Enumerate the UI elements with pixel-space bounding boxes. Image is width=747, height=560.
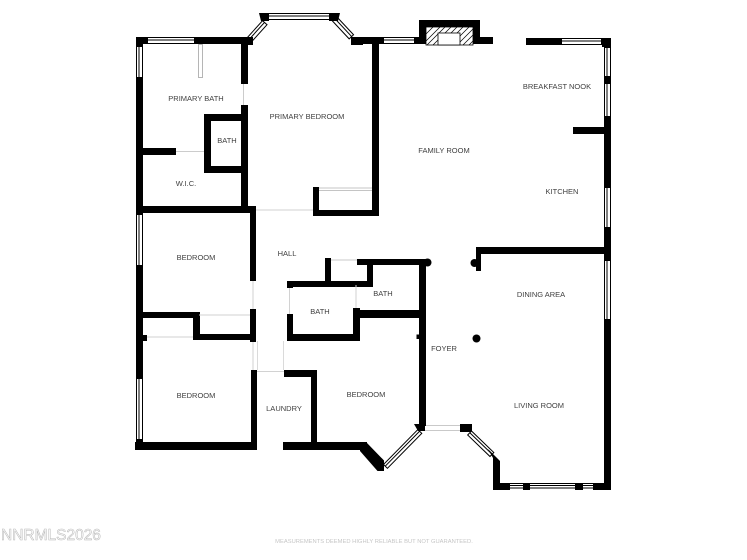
svg-text:HALL: HALL <box>278 249 297 258</box>
svg-text:BATH: BATH <box>310 307 329 316</box>
svg-text:FAMILY ROOM: FAMILY ROOM <box>418 146 469 155</box>
svg-text:BEDROOM: BEDROOM <box>177 391 216 400</box>
svg-text:BATH: BATH <box>217 136 236 145</box>
svg-text:FOYER: FOYER <box>431 344 457 353</box>
svg-text:PRIMARY BEDROOM: PRIMARY BEDROOM <box>270 112 345 121</box>
svg-text:BEDROOM: BEDROOM <box>177 253 216 262</box>
svg-text:KITCHEN: KITCHEN <box>546 187 579 196</box>
svg-text:MEASUREMENTS DEEMED HIGHLY REL: MEASUREMENTS DEEMED HIGHLY RELIABLE BUT … <box>275 539 473 545</box>
svg-text:W.I.C.: W.I.C. <box>176 179 196 188</box>
svg-text:BEDROOM: BEDROOM <box>347 390 386 399</box>
svg-text:BATH: BATH <box>373 289 392 298</box>
svg-text:LIVING ROOM: LIVING ROOM <box>514 401 564 410</box>
svg-text:BREAKFAST NOOK: BREAKFAST NOOK <box>523 82 591 91</box>
svg-text:NNRMLS2026: NNRMLS2026 <box>1 527 101 544</box>
svg-text:DINING AREA: DINING AREA <box>517 290 565 299</box>
svg-text:PRIMARY BATH: PRIMARY BATH <box>168 94 223 103</box>
svg-text:LAUNDRY: LAUNDRY <box>266 404 302 413</box>
